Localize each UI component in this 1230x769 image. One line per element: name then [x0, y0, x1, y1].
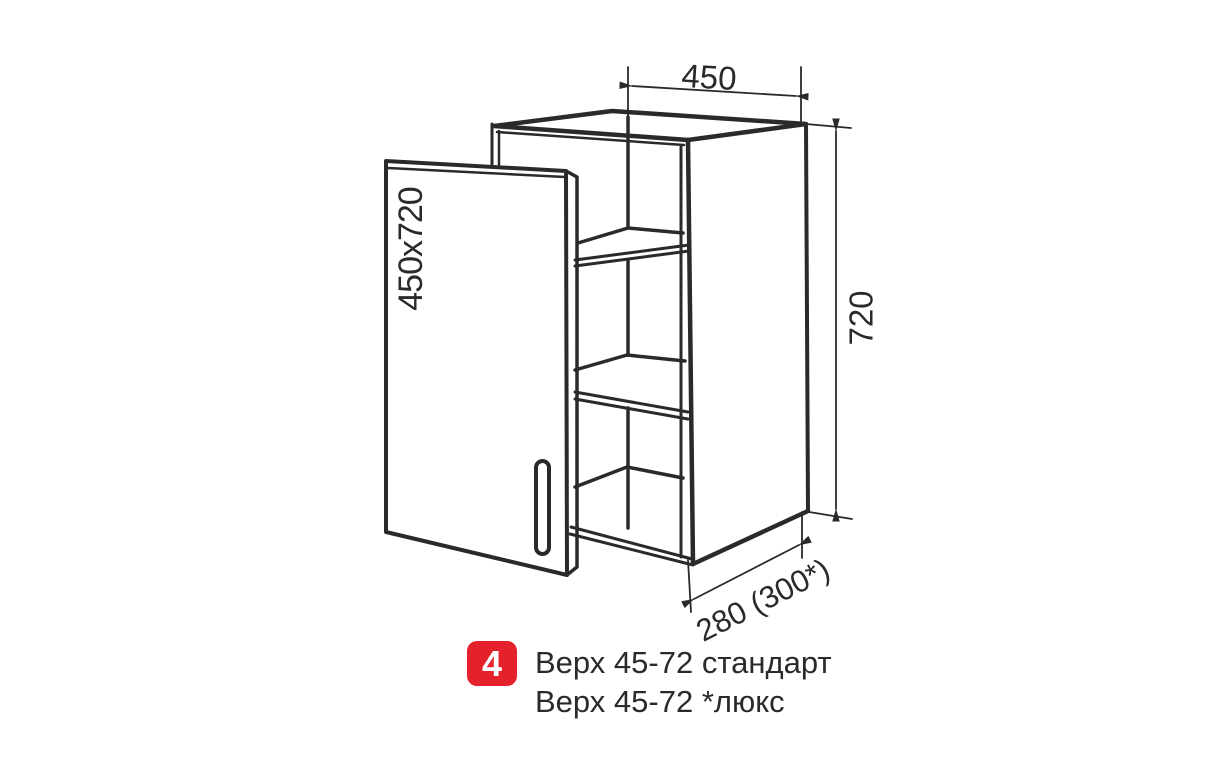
caption-line-lux: Верх 45-72 *люкс [535, 682, 832, 721]
shelf-middle [575, 355, 688, 419]
caption: 4 Верх 45-72 стандарт Верх 45-72 *люкс [467, 641, 832, 721]
item-number-badge: 4 [467, 641, 517, 686]
width-dimension-label: 450 [681, 59, 738, 95]
height-dimension-label: 720 [845, 290, 878, 345]
shelf-top [575, 228, 689, 266]
caption-line-standard: Верх 45-72 стандарт [535, 643, 832, 682]
door-size-label: 450x720 [394, 187, 428, 310]
door-handle [536, 461, 549, 554]
caption-text: Верх 45-72 стандарт Верх 45-72 *люкс [535, 641, 832, 721]
catalog-figure: 450x720 450 720 280 (300*) 4 Верх 45-72 … [0, 0, 1230, 769]
